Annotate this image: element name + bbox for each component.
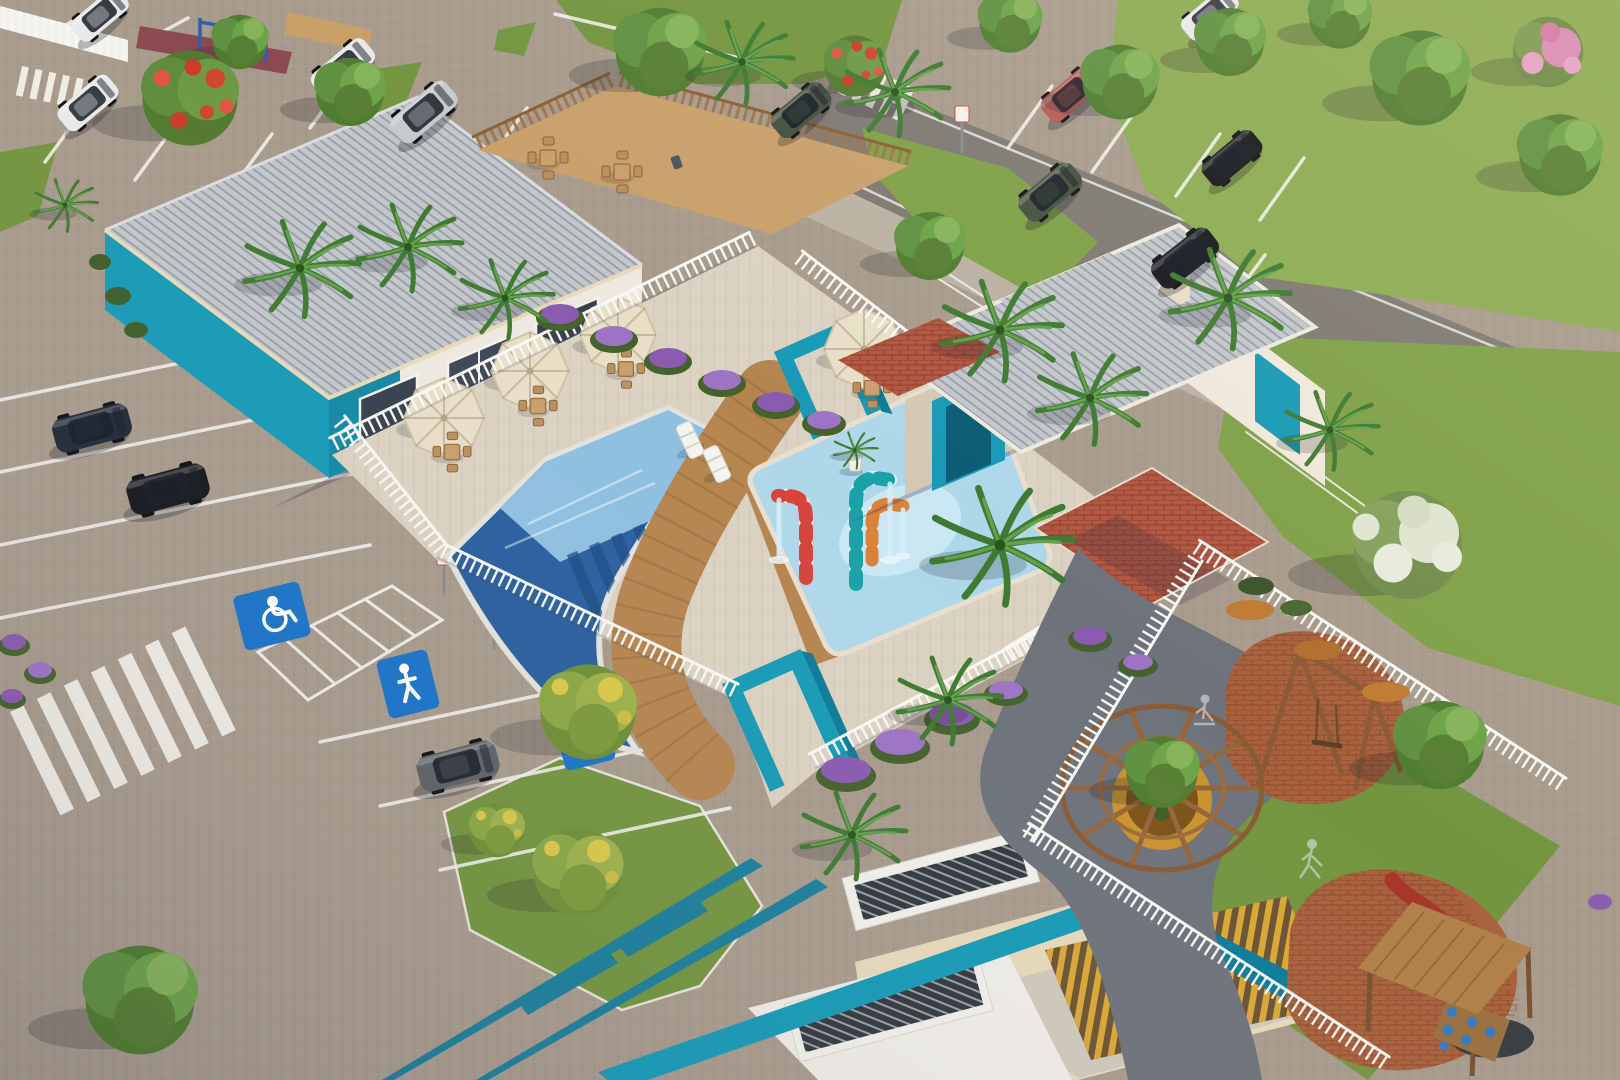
- sunlight-overlay: [0, 0, 1620, 1080]
- render-canvas: [0, 0, 1620, 1080]
